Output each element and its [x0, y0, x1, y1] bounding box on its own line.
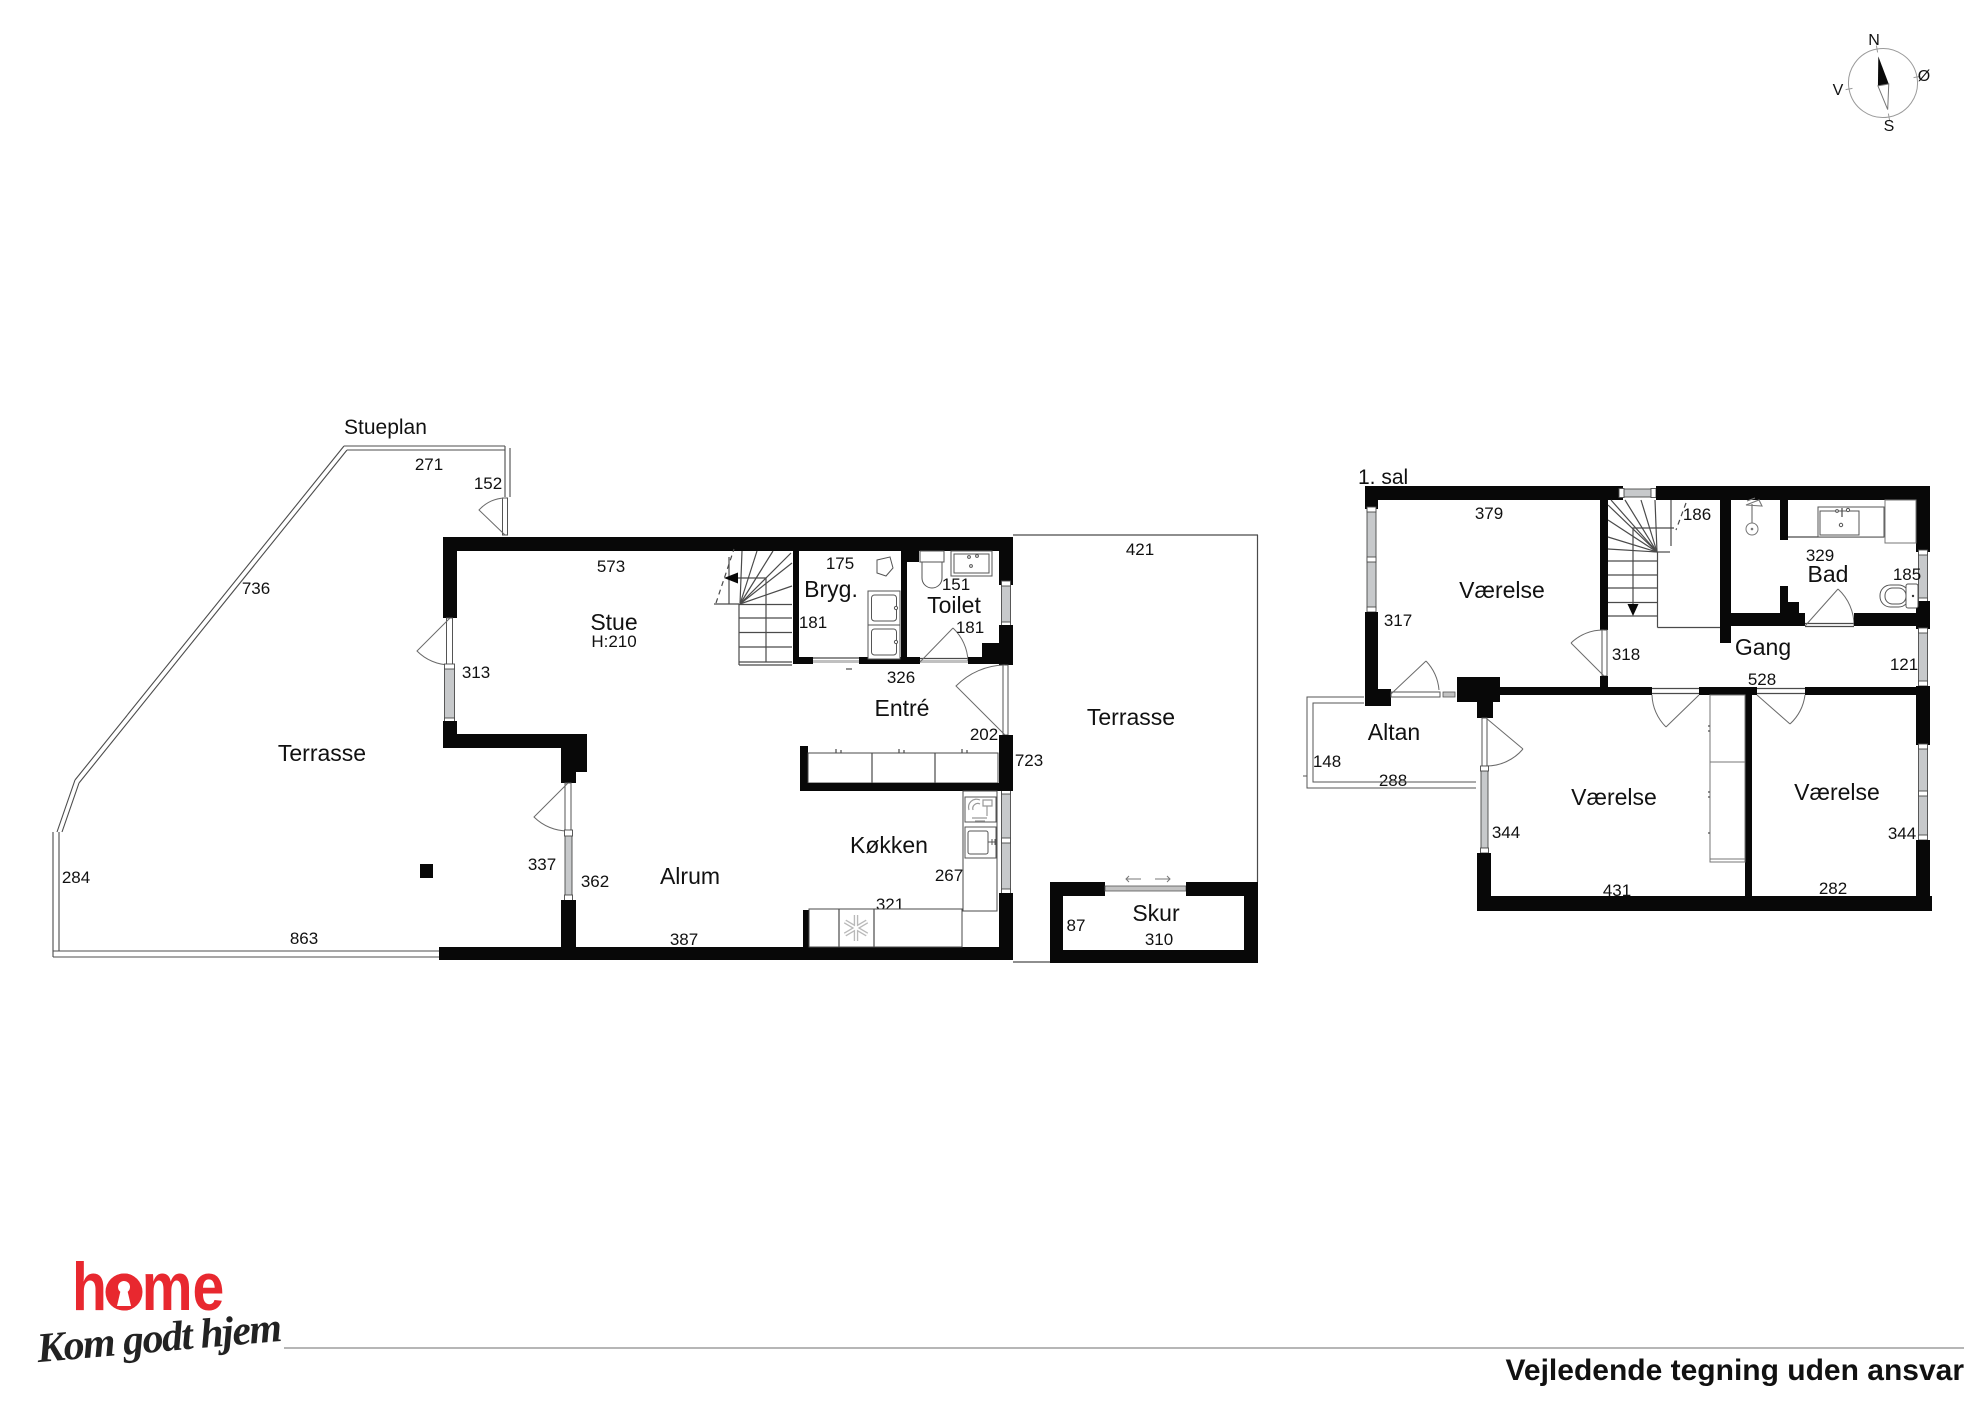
svg-text:284: 284: [62, 868, 90, 887]
svg-text:387: 387: [670, 930, 698, 949]
svg-text:Værelse: Værelse: [1571, 784, 1657, 810]
svg-text:Alrum: Alrum: [660, 863, 720, 889]
svg-text:Ø: Ø: [1918, 68, 1930, 85]
svg-text:Entré: Entré: [875, 695, 930, 721]
svg-text:Toilet: Toilet: [927, 592, 981, 618]
svg-text:H:210: H:210: [591, 632, 636, 651]
svg-text:362: 362: [581, 872, 609, 891]
svg-text:573: 573: [597, 557, 625, 576]
svg-text:421: 421: [1126, 540, 1154, 559]
svg-text:Terrasse: Terrasse: [278, 740, 366, 766]
svg-text:151: 151: [942, 575, 970, 594]
svg-text:Stueplan: Stueplan: [344, 416, 427, 439]
svg-text:Skur: Skur: [1132, 900, 1180, 926]
svg-text:344: 344: [1492, 823, 1520, 842]
svg-text:863: 863: [290, 929, 318, 948]
svg-text:267: 267: [935, 866, 963, 885]
svg-text:313: 313: [462, 663, 490, 682]
svg-text:Køkken: Køkken: [850, 832, 928, 858]
svg-text:202: 202: [970, 725, 998, 744]
svg-text:87: 87: [1067, 916, 1086, 935]
svg-text:318: 318: [1612, 645, 1640, 664]
svg-text:Vejledende tegning uden ansvar: Vejledende tegning uden ansvar: [1506, 1354, 1965, 1387]
svg-text:282: 282: [1819, 879, 1847, 898]
svg-text:344: 344: [1888, 824, 1916, 843]
svg-text:337: 337: [528, 855, 556, 874]
svg-text:181: 181: [799, 613, 827, 632]
svg-text:431: 431: [1603, 881, 1631, 900]
svg-text:1. sal: 1. sal: [1358, 466, 1408, 489]
svg-text:Værelse: Værelse: [1794, 779, 1880, 805]
svg-text:528: 528: [1748, 670, 1776, 689]
svg-text:V: V: [1833, 82, 1844, 99]
svg-text:271: 271: [415, 455, 443, 474]
svg-text:379: 379: [1475, 504, 1503, 523]
svg-text:310: 310: [1145, 930, 1173, 949]
svg-text:723: 723: [1015, 751, 1043, 770]
svg-text:736: 736: [242, 579, 270, 598]
svg-text:Værelse: Værelse: [1459, 577, 1545, 603]
svg-text:121: 121: [1890, 655, 1918, 674]
svg-text:326: 326: [887, 668, 915, 687]
svg-text:288: 288: [1379, 771, 1407, 790]
svg-text:175: 175: [826, 554, 854, 573]
svg-text:181: 181: [956, 618, 984, 637]
svg-text:Altan: Altan: [1368, 719, 1420, 745]
svg-text:Terrasse: Terrasse: [1087, 704, 1175, 730]
svg-text:S: S: [1884, 118, 1895, 135]
svg-text:Bryg.: Bryg.: [804, 576, 858, 602]
svg-text:185: 185: [1893, 565, 1921, 584]
svg-text:148: 148: [1313, 752, 1341, 771]
svg-text:N: N: [1868, 32, 1880, 49]
svg-text:186: 186: [1683, 505, 1711, 524]
svg-text:317: 317: [1384, 611, 1412, 630]
svg-text:152: 152: [474, 474, 502, 493]
svg-text:Gang: Gang: [1735, 634, 1791, 660]
svg-text:329: 329: [1806, 546, 1834, 565]
